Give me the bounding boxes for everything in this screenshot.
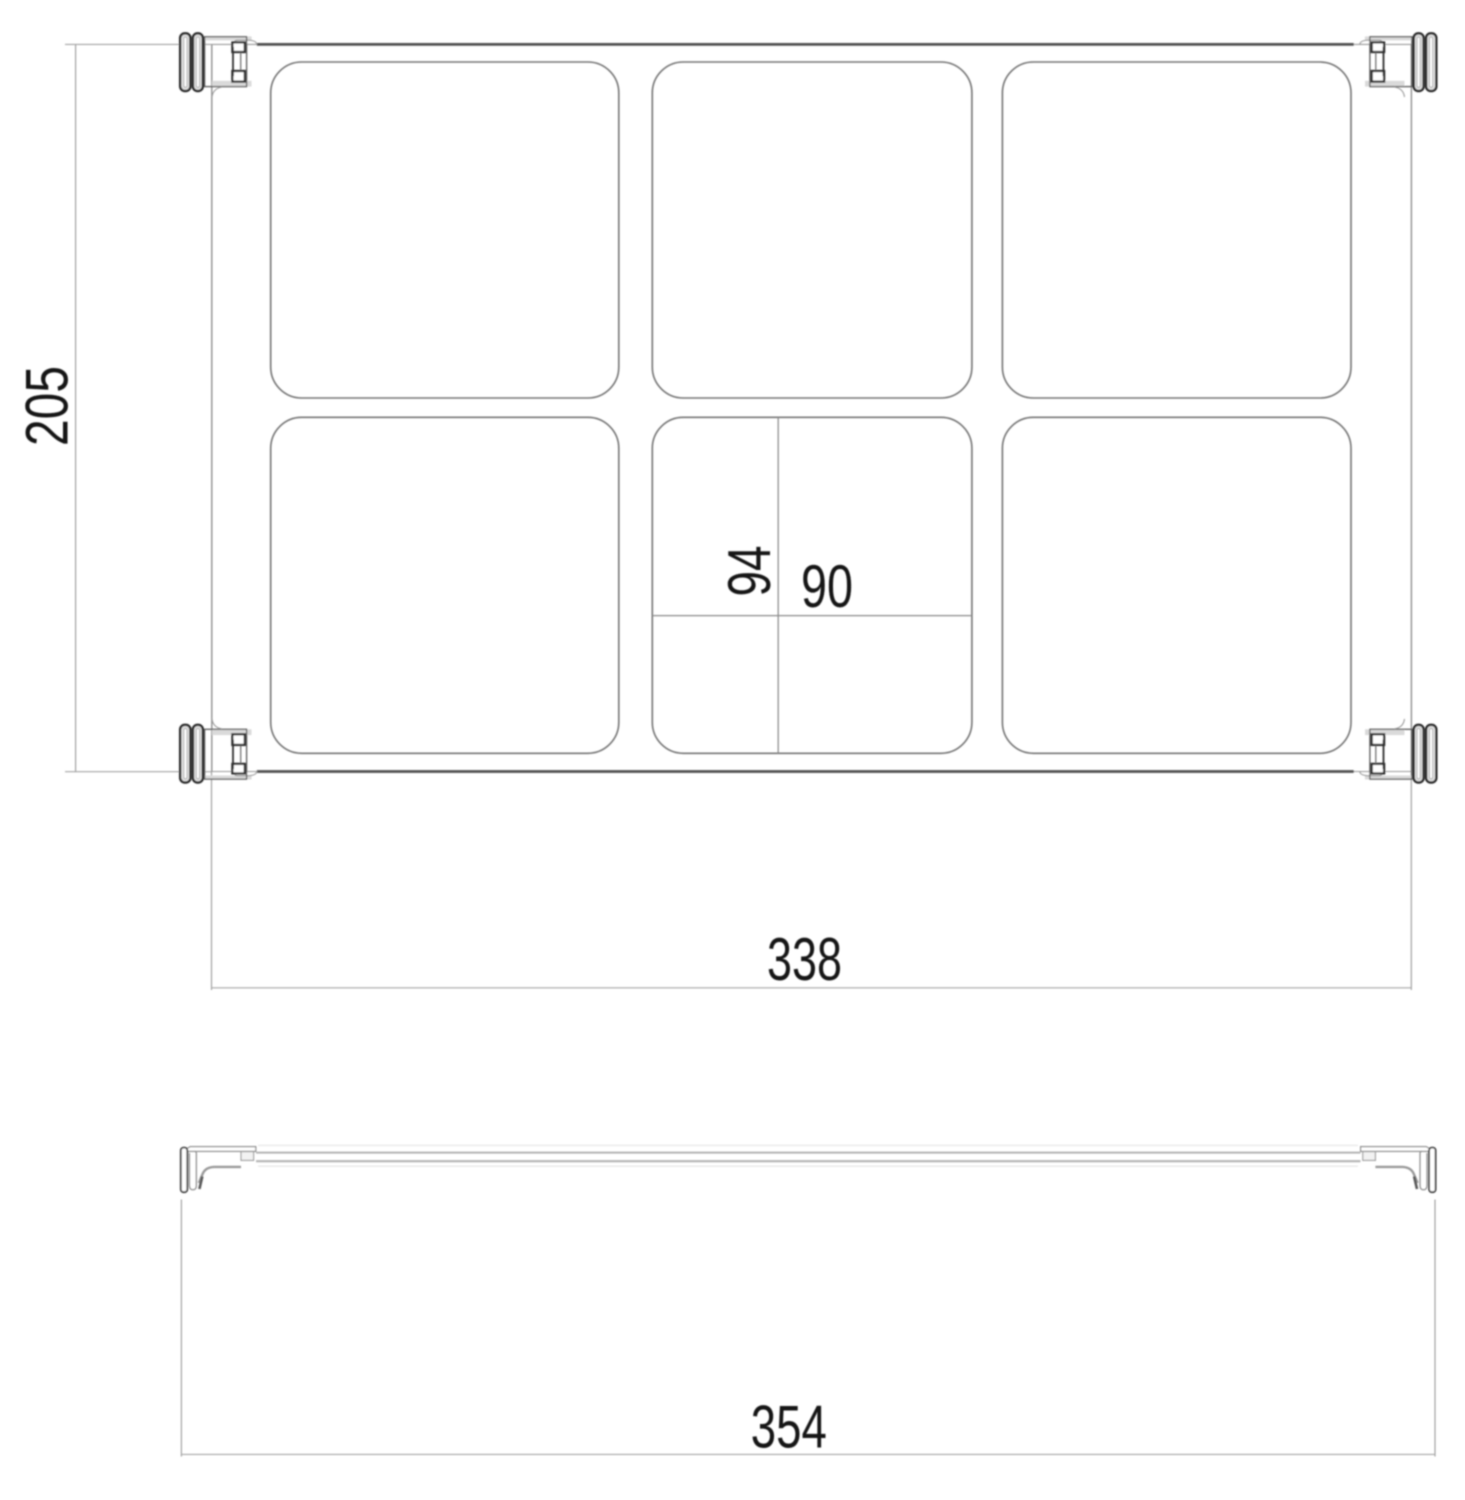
svg-text:94: 94 — [715, 546, 783, 597]
svg-text:354: 354 — [751, 1393, 827, 1461]
svg-text:90: 90 — [801, 552, 853, 620]
svg-text:338: 338 — [767, 925, 842, 993]
svg-text:205: 205 — [13, 366, 81, 446]
